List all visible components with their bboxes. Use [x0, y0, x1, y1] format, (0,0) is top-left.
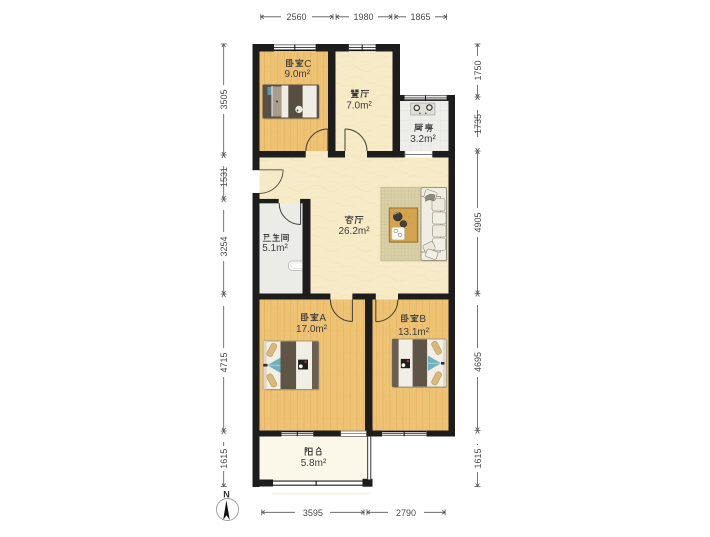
svg-text:3.2m²: 3.2m²: [410, 134, 436, 145]
svg-text:A: A: [319, 313, 326, 324]
svg-text:4695: 4695: [473, 352, 483, 372]
svg-text:2790: 2790: [396, 508, 416, 518]
svg-text:3505: 3505: [219, 89, 229, 109]
svg-text:4905: 4905: [473, 212, 483, 232]
svg-text:9.0m²: 9.0m²: [285, 69, 311, 80]
svg-text:5.8m²: 5.8m²: [301, 458, 327, 469]
svg-text:1865: 1865: [410, 12, 430, 22]
svg-text:1615: 1615: [219, 449, 229, 469]
svg-text:4715: 4715: [219, 352, 229, 372]
svg-text:B: B: [419, 314, 426, 325]
svg-text:17.0m²: 17.0m²: [296, 324, 328, 335]
svg-text:1615: 1615: [473, 448, 483, 468]
svg-text:26.2m²: 26.2m²: [338, 226, 370, 237]
svg-text:1750: 1750: [473, 60, 483, 80]
svg-text:N: N: [223, 490, 230, 500]
svg-text:2560: 2560: [286, 12, 306, 22]
svg-text:7.0m²: 7.0m²: [346, 101, 372, 112]
svg-text:13.1m²: 13.1m²: [398, 327, 430, 338]
svg-text:1980: 1980: [353, 12, 373, 22]
svg-text:3254: 3254: [219, 236, 229, 256]
svg-text:5.1m²: 5.1m²: [262, 243, 288, 254]
svg-text:1531: 1531: [219, 167, 229, 187]
svg-text:1735: 1735: [473, 114, 483, 134]
svg-text:3595: 3595: [303, 508, 323, 518]
